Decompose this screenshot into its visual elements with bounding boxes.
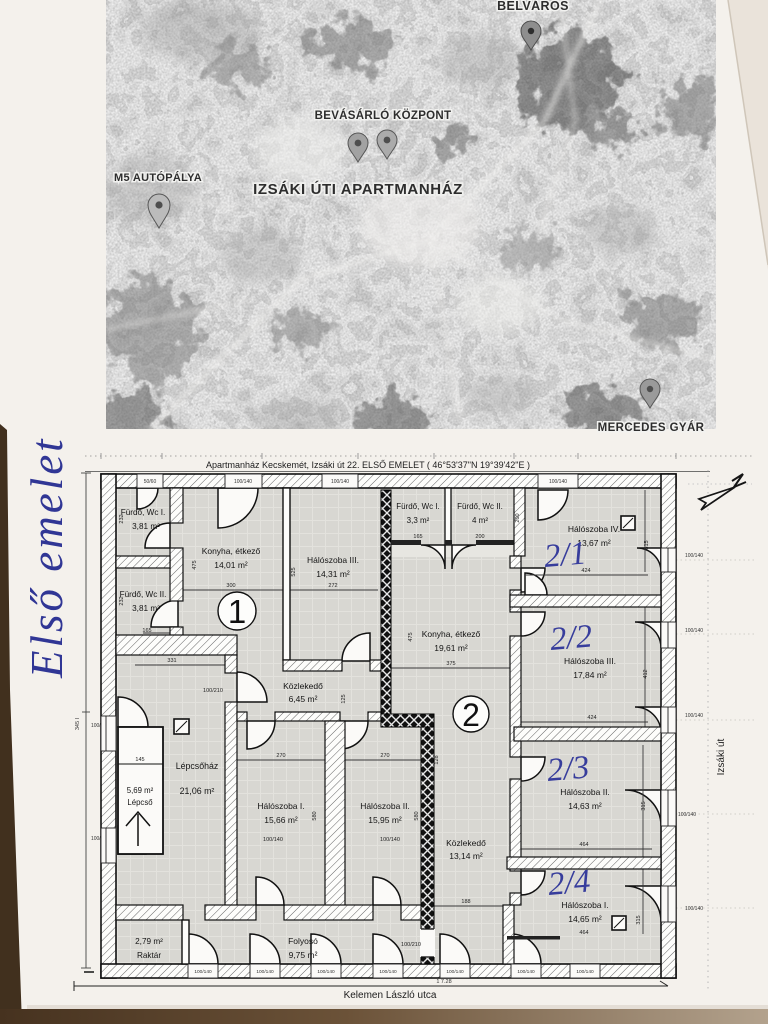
svg-text:Hálószoba III.: Hálószoba III. (564, 656, 616, 666)
svg-text:6,45 m²: 6,45 m² (289, 694, 318, 704)
svg-text:475: 475 (192, 560, 198, 569)
svg-text:125: 125 (341, 694, 347, 703)
svg-text:50/60: 50/60 (144, 479, 157, 485)
svg-text:100/140: 100/140 (549, 479, 567, 485)
svg-text:Hálószoba I.: Hálószoba I. (561, 900, 608, 910)
svg-text:145: 145 (135, 757, 144, 763)
svg-text:15,66 m²: 15,66 m² (264, 815, 298, 825)
svg-text:2/3: 2/3 (546, 749, 591, 789)
svg-text:14,01 m²: 14,01 m² (214, 560, 248, 570)
svg-text:100/140: 100/140 (446, 969, 464, 975)
svg-text:BELVÁROS: BELVÁROS (497, 0, 569, 13)
svg-text:464: 464 (579, 930, 588, 936)
svg-text:100/140: 100/140 (194, 969, 212, 975)
svg-text:464: 464 (579, 842, 588, 848)
svg-text:14,63 m²: 14,63 m² (568, 801, 602, 811)
svg-text:MERCEDES GYÁR: MERCEDES GYÁR (598, 421, 705, 434)
svg-text:5,69 m²: 5,69 m² (127, 786, 154, 795)
svg-text:Kelemen László utca: Kelemen László utca (344, 990, 437, 1001)
svg-text:100/140: 100/140 (685, 553, 703, 559)
svg-text:Konyha, étkező: Konyha, étkező (422, 629, 481, 639)
svg-text:188: 188 (461, 899, 470, 905)
svg-text:272: 272 (328, 583, 337, 589)
svg-text:375: 375 (446, 661, 455, 667)
svg-text:Fürdő, Wc I.: Fürdő, Wc I. (121, 508, 166, 517)
svg-text:100/140: 100/140 (517, 969, 535, 975)
svg-text:Izsáki út: Izsáki út (716, 738, 727, 775)
svg-text:17,84 m²: 17,84 m² (573, 670, 607, 680)
svg-text:100/140: 100/140 (685, 906, 703, 912)
svg-text:2/2: 2/2 (549, 618, 594, 658)
svg-text:Hálószoba II.: Hálószoba II. (560, 787, 610, 797)
svg-text:9,75 m²: 9,75 m² (289, 950, 318, 960)
svg-text:Apartmanház Kecskemét, Izsáki: Apartmanház Kecskemét, Izsáki út 22. ELS… (206, 460, 530, 470)
svg-text:315: 315 (636, 915, 642, 924)
svg-text:200: 200 (515, 513, 521, 522)
svg-text:580: 580 (312, 811, 318, 820)
svg-text:270: 270 (276, 753, 285, 759)
svg-text:100/140: 100/140 (685, 628, 703, 634)
svg-text:100/210: 100/210 (203, 688, 223, 694)
svg-text:100/140: 100/140 (317, 969, 335, 975)
svg-text:232: 232 (119, 514, 125, 523)
svg-text:128: 128 (434, 755, 440, 764)
svg-text:100/140: 100/140 (234, 479, 252, 485)
svg-text:Fürdő, Wc I.: Fürdő, Wc I. (396, 502, 440, 511)
svg-text:21,06 m²: 21,06 m² (180, 786, 215, 796)
svg-text:270: 270 (380, 753, 389, 759)
svg-text:14,65 m²: 14,65 m² (568, 914, 602, 924)
svg-text:Közlekedő: Közlekedő (446, 838, 486, 848)
svg-text:1 7.28: 1 7.28 (436, 979, 451, 985)
svg-text:200: 200 (475, 534, 484, 540)
svg-text:Fürdő, Wc II.: Fürdő, Wc II. (457, 502, 503, 511)
svg-text:165: 165 (413, 534, 422, 540)
svg-text:100/140: 100/140 (263, 837, 283, 843)
svg-text:2/4: 2/4 (547, 863, 592, 903)
svg-text:331: 331 (167, 658, 176, 664)
svg-text:3,3 m²: 3,3 m² (407, 516, 430, 525)
svg-text:Közlekedő: Közlekedő (283, 681, 323, 691)
svg-text:300: 300 (226, 583, 235, 589)
svg-text:100/140: 100/140 (256, 969, 274, 975)
svg-text:Hálószoba II.: Hálószoba II. (360, 801, 410, 811)
svg-text:2: 2 (462, 697, 480, 733)
svg-text:475: 475 (408, 632, 414, 641)
svg-text:Konyha, étkező: Konyha, étkező (202, 546, 261, 556)
svg-text:165: 165 (142, 628, 151, 634)
svg-text:IZSÁKI ÚTI APARTMANHÁZ: IZSÁKI ÚTI APARTMANHÁZ (253, 180, 463, 198)
svg-text:Lépcsőház: Lépcsőház (176, 761, 219, 771)
svg-text:315: 315 (644, 540, 650, 549)
svg-text:100/140: 100/140 (380, 837, 400, 843)
svg-text:100/140: 100/140 (678, 812, 696, 818)
svg-text:100/140: 100/140 (379, 969, 397, 975)
svg-text:2,79 m²: 2,79 m² (135, 937, 163, 946)
svg-text:100/210: 100/210 (401, 942, 421, 948)
svg-text:15,95 m²: 15,95 m² (368, 815, 402, 825)
svg-text:232: 232 (119, 596, 125, 605)
svg-text:1: 1 (228, 593, 246, 630)
svg-text:100/140: 100/140 (685, 713, 703, 719)
svg-text:Hálószoba IV.: Hálószoba IV. (568, 524, 620, 534)
svg-text:13,14 m²: 13,14 m² (449, 851, 483, 861)
svg-text:19,61 m²: 19,61 m² (434, 643, 468, 653)
svg-text:3,81 m²: 3,81 m² (132, 522, 160, 531)
svg-text:M5 AUTÓPÁLYA: M5 AUTÓPÁLYA (114, 171, 202, 184)
svg-text:4 m²: 4 m² (472, 516, 488, 525)
svg-text:100/140: 100/140 (331, 479, 349, 485)
svg-text:424: 424 (587, 715, 596, 721)
svg-text:315: 315 (641, 801, 647, 810)
svg-text:Fürdő, Wc II.: Fürdő, Wc II. (120, 590, 167, 599)
svg-text:Hálószoba III.: Hálószoba III. (307, 555, 359, 565)
svg-text:BEVÁSÁRLÓ KÖZPONT: BEVÁSÁRLÓ KÖZPONT (315, 109, 452, 122)
svg-text:525: 525 (291, 567, 297, 576)
svg-text:Hálószoba I.: Hálószoba I. (257, 801, 304, 811)
svg-text:Folyosó: Folyosó (288, 936, 318, 946)
svg-text:Első emelet: Első emelet (22, 436, 72, 679)
svg-text:580: 580 (414, 811, 420, 820)
svg-text:3,81 m²: 3,81 m² (132, 604, 160, 613)
svg-text:Lépcső: Lépcső (127, 798, 153, 807)
svg-text:14,31 m²: 14,31 m² (316, 569, 350, 579)
svg-text:100/140: 100/140 (576, 969, 594, 975)
svg-text:412: 412 (643, 669, 649, 678)
svg-text:2/1: 2/1 (543, 535, 588, 575)
svg-text:345 I: 345 I (75, 717, 81, 730)
svg-text:Raktár: Raktár (137, 951, 161, 960)
